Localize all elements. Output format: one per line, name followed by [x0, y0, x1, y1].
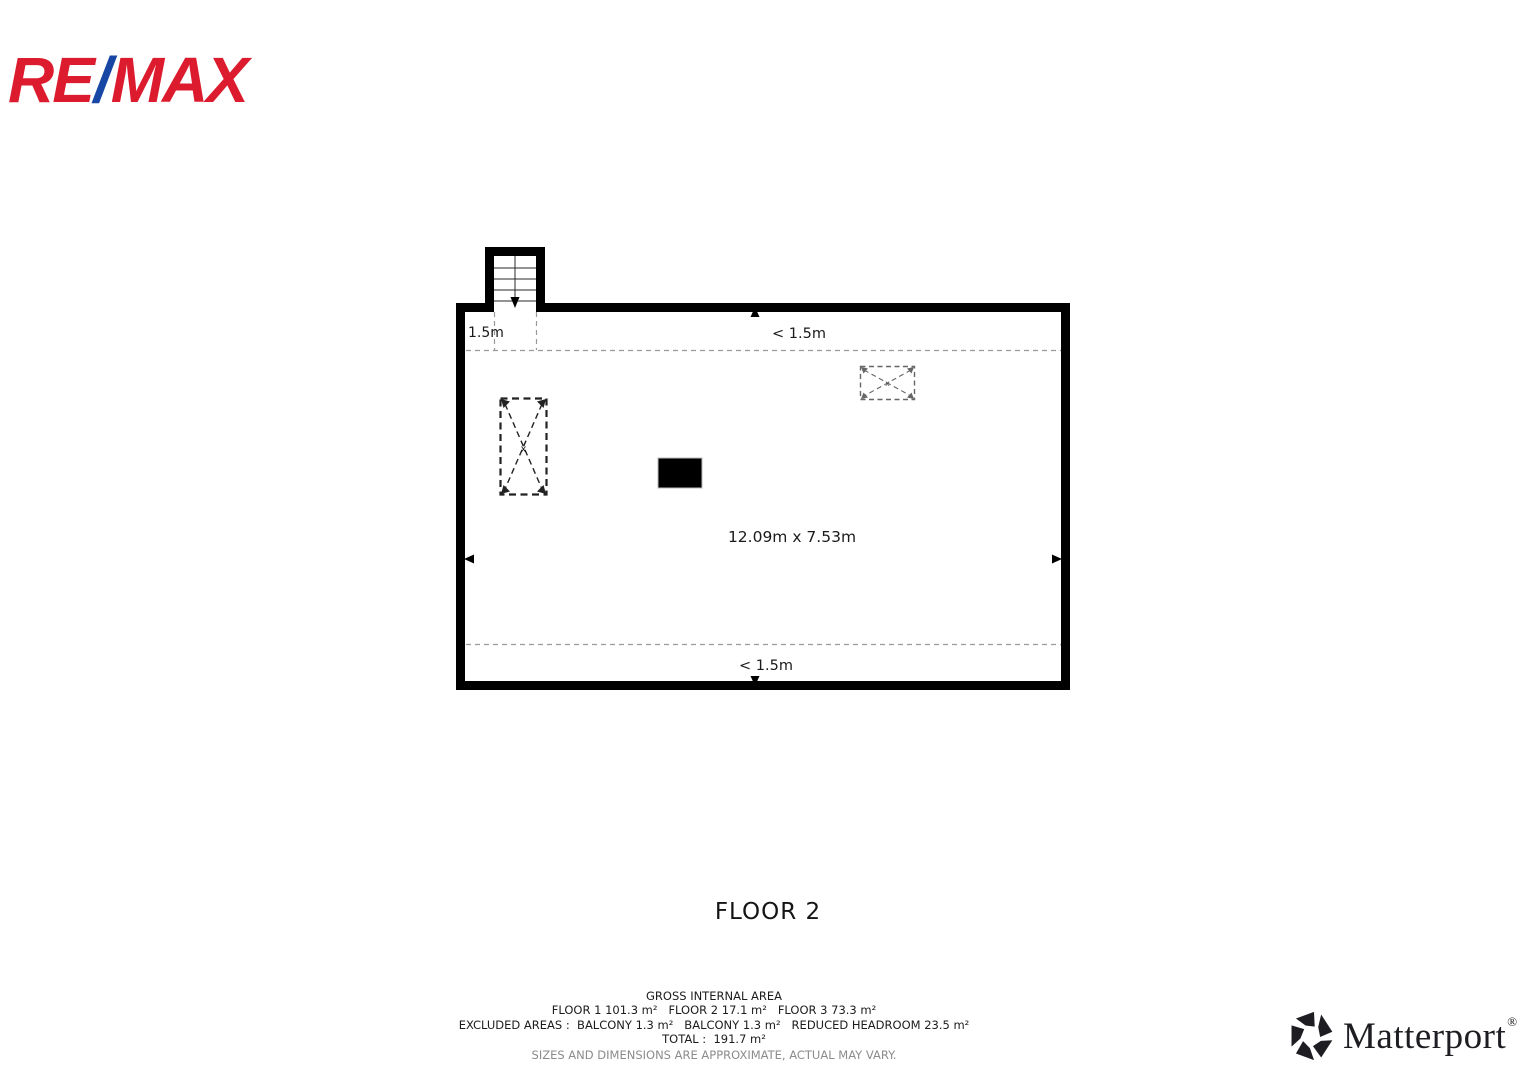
matterport-registered-mark: ® [1507, 1014, 1517, 1030]
matterport-logo: Matterport ® [1286, 1007, 1516, 1065]
floor-title: FLOOR 2 [618, 899, 918, 925]
remax-logo: RE/MAX [8, 48, 247, 112]
area-summary-excluded: EXCLUDED AREAS : BALCONY 1.3 m² BALCONY … [364, 1018, 1064, 1032]
matterport-pinwheel-icon [1286, 1007, 1336, 1065]
area-summary: GROSS INTERNAL AREA FLOOR 1 101.3 m² FLO… [364, 989, 1064, 1062]
remax-logo-max: MAX [111, 44, 247, 116]
crossed-box-left-x-marker: x [521, 444, 527, 455]
area-summary-total: TOTAL : 191.7 m² [364, 1032, 1064, 1046]
room-dimensions-label: 12.09m x 7.53m [728, 528, 856, 546]
floorplan-page: RE/MAX [0, 0, 1527, 1080]
remax-logo-re: RE [8, 44, 93, 116]
solid-black-block [658, 458, 702, 488]
top-headroom-label: < 1.5m [772, 326, 826, 342]
room-walls [461, 308, 1066, 686]
stair-headroom-label: 1.5m [468, 325, 504, 341]
floor-plan-drawing: x x 1.5m < 1.5m 12.09m x 7.53m < 1.5m [440, 230, 1100, 710]
matterport-wordmark: Matterport [1343, 1015, 1506, 1058]
staircase [485, 247, 545, 312]
remax-logo-slash: / [93, 44, 111, 116]
bottom-headroom-label: < 1.5m [739, 658, 793, 674]
area-summary-heading: GROSS INTERNAL AREA [364, 989, 1064, 1003]
crossed-box-right-x-marker: x [885, 379, 890, 388]
area-summary-floors: FLOOR 1 101.3 m² FLOOR 2 17.1 m² FLOOR 3… [364, 1003, 1064, 1017]
area-summary-disclaimer: SIZES AND DIMENSIONS ARE APPROXIMATE, AC… [364, 1048, 1064, 1062]
